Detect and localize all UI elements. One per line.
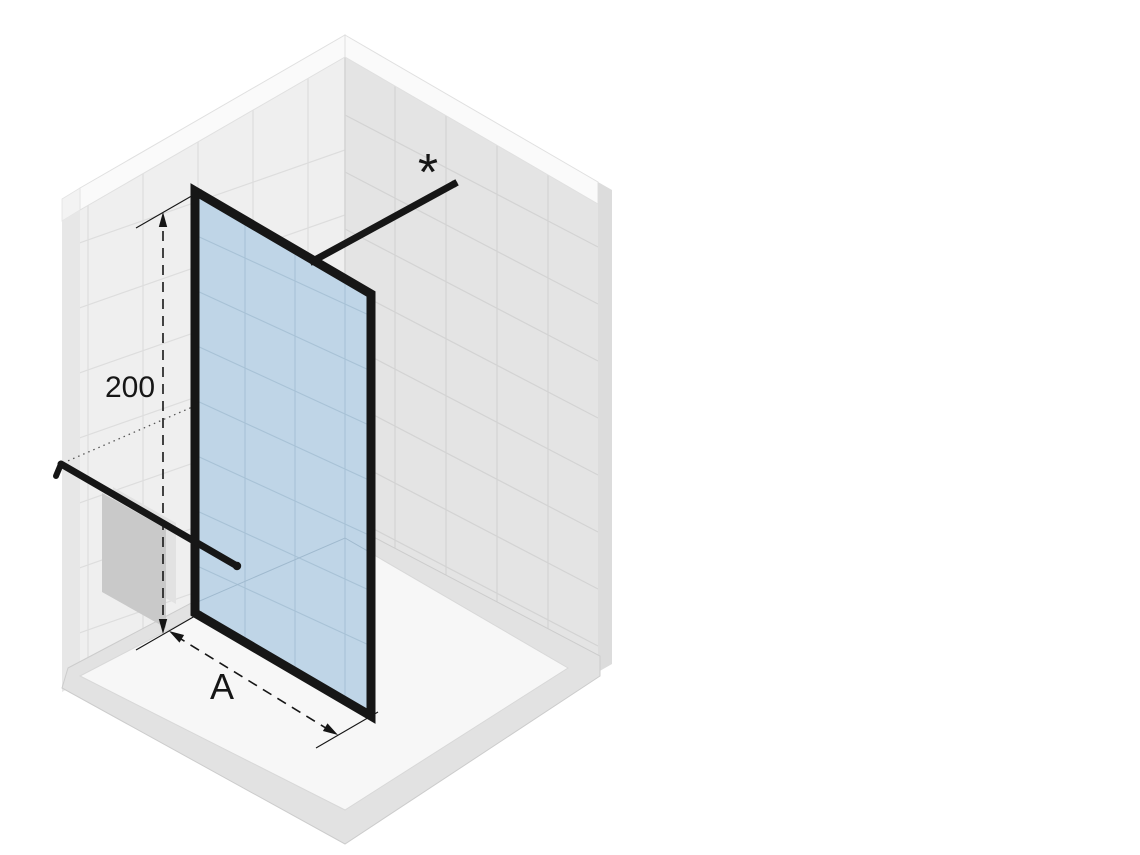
- diagram-canvas: 200 A *: [0, 0, 1140, 855]
- stabilizer-bar-end-cap: [450, 180, 457, 187]
- width-dimension-label: A: [210, 666, 234, 707]
- shower-walkin-diagram: 200 A *: [0, 0, 1140, 855]
- towel-bar-end-cap: [233, 562, 241, 570]
- right-wall-side-face: [598, 182, 612, 672]
- left-wall-side-face: [62, 210, 80, 692]
- footnote-asterisk: *: [418, 144, 438, 202]
- height-dimension-label: 200: [105, 371, 155, 404]
